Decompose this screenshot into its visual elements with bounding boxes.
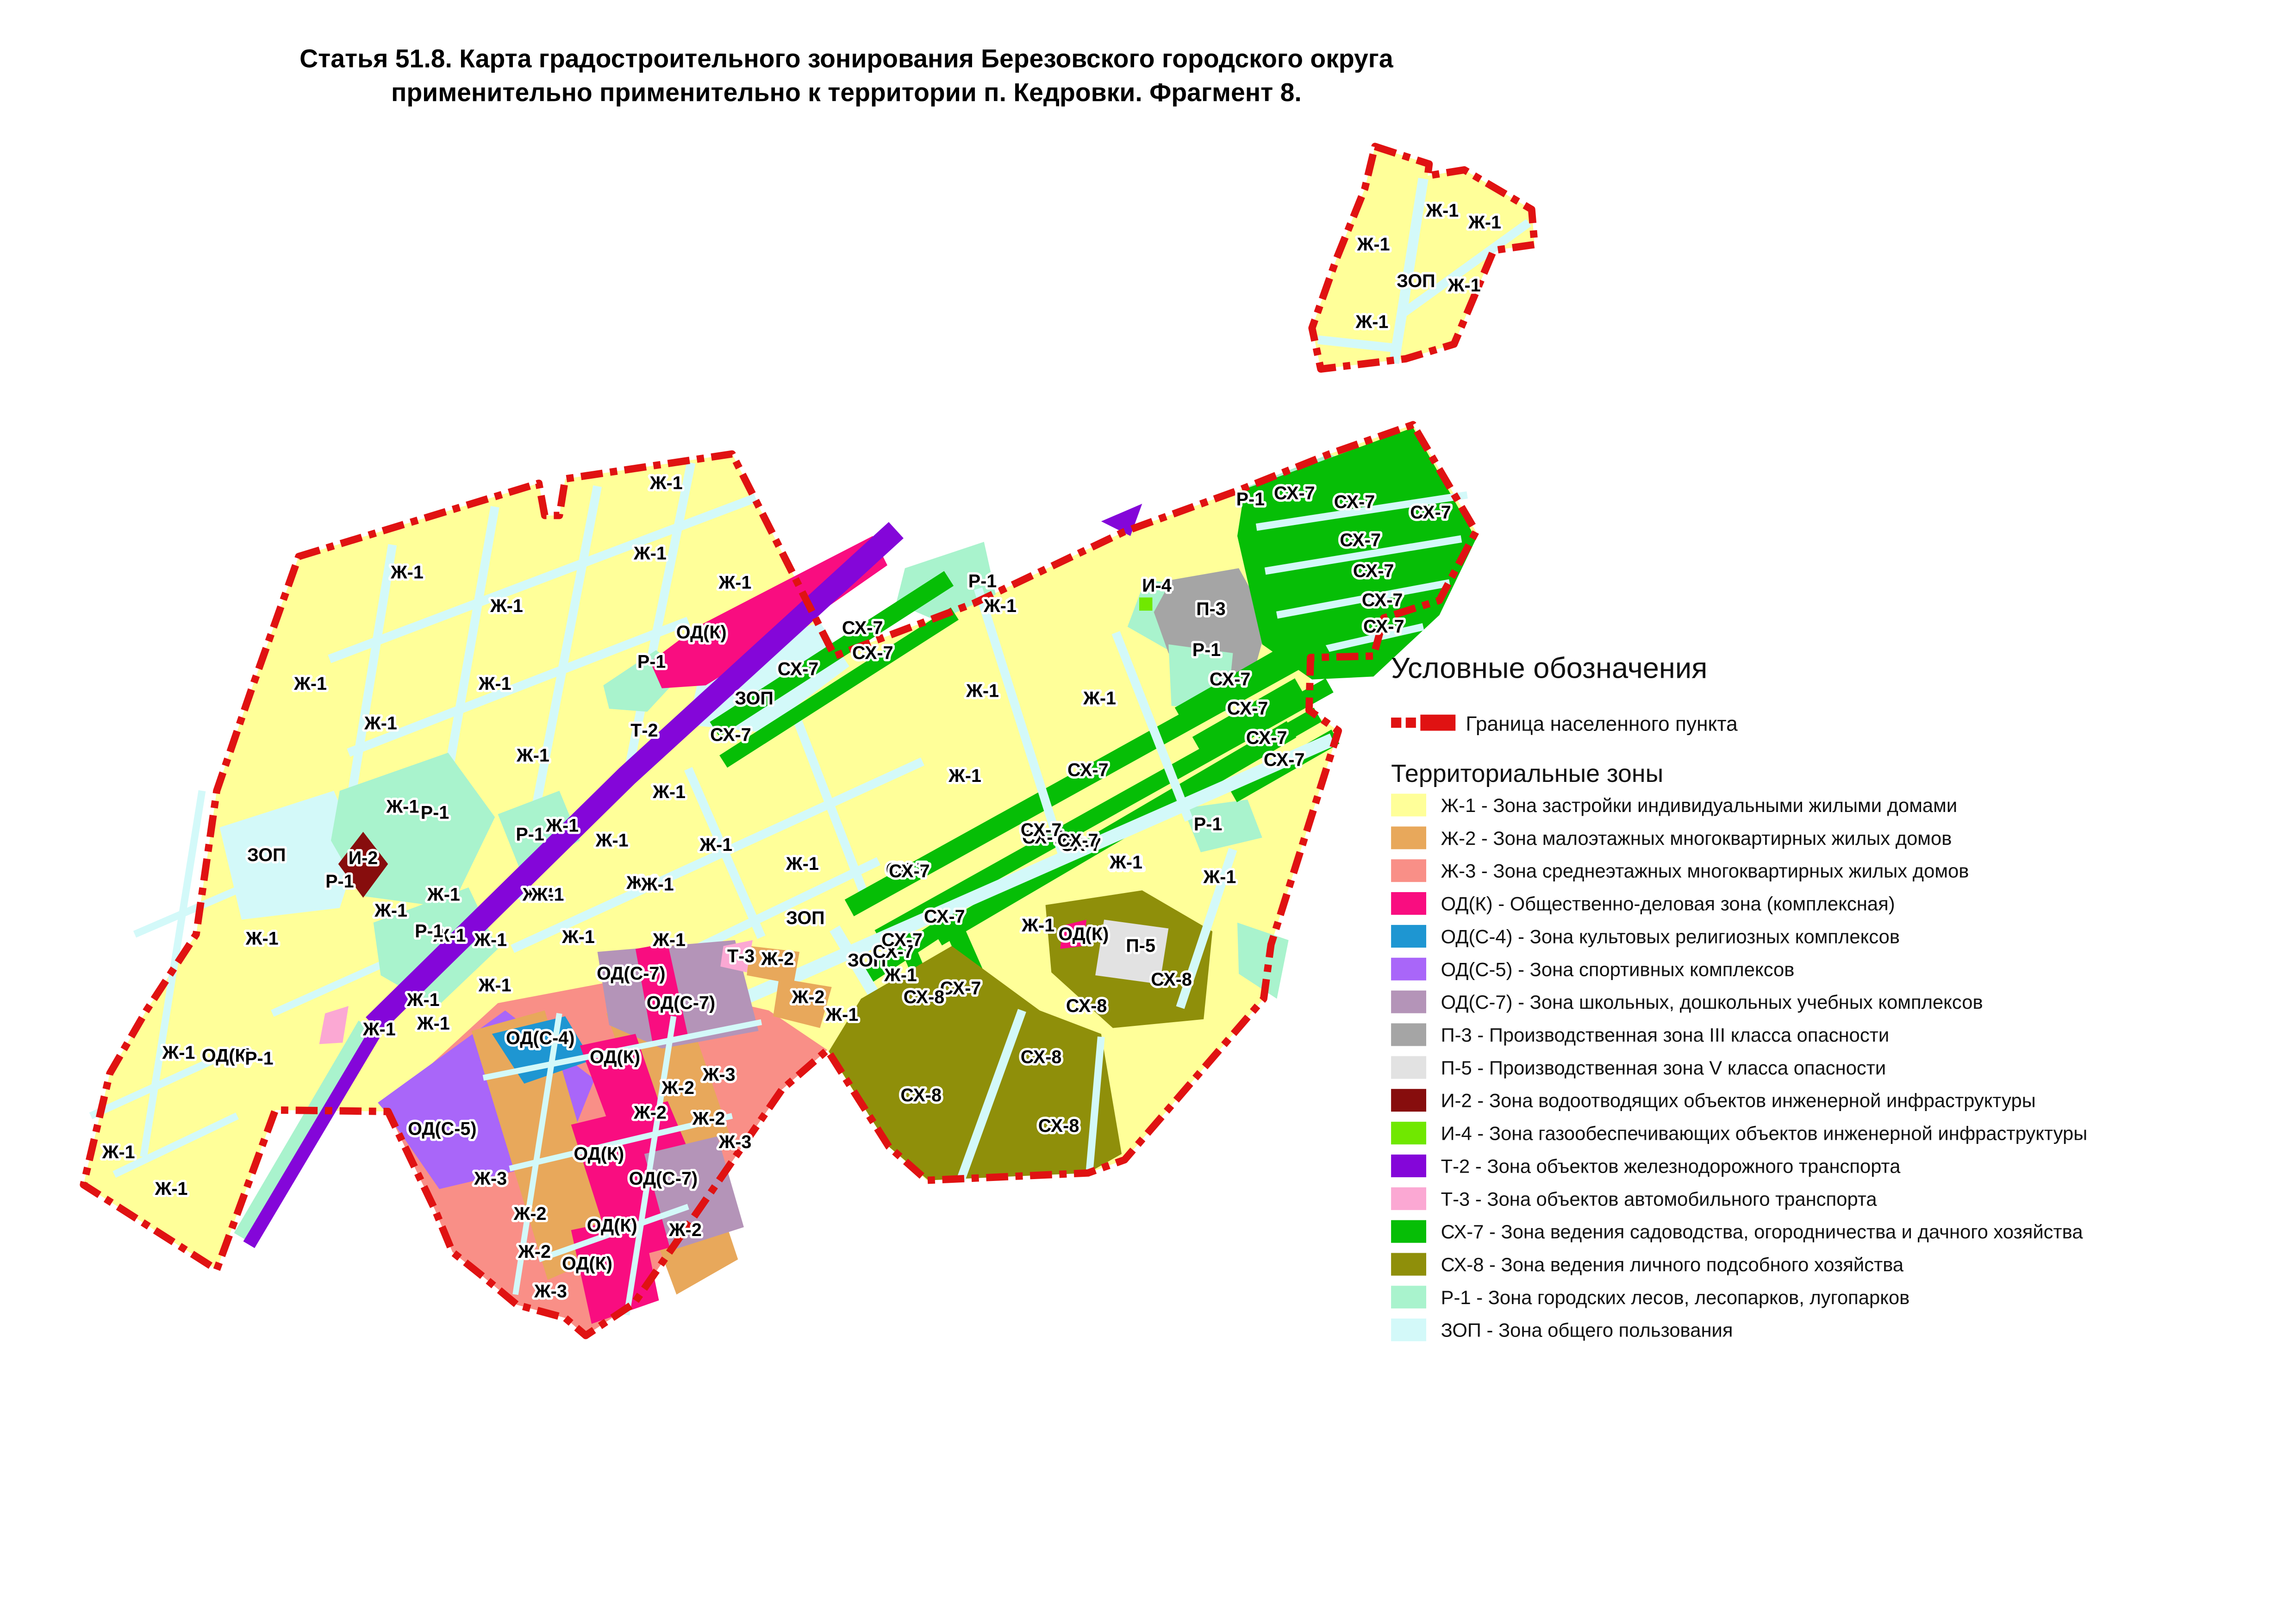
- legend-item: П-5 - Производственная зона V класса опа…: [1391, 1056, 1886, 1079]
- zone-label: Р-1: [516, 824, 544, 845]
- zone-label: ОД(К): [562, 1254, 612, 1274]
- zone-label: ЗОП: [247, 845, 286, 865]
- zone-label: Ж-2: [692, 1108, 725, 1129]
- legend-swatch: [1391, 826, 1426, 849]
- legend-item-label: Ж-2 - Зона малоэтажных многоквартирных ж…: [1441, 827, 1952, 849]
- legend-item-label: Т-3 - Зона объектов автомобильного транс…: [1441, 1188, 1878, 1210]
- legend-item: ОД(К) - Общественно-деловая зона (компле…: [1391, 892, 1895, 915]
- legend: Условные обозначения Граница населенного…: [1391, 652, 2087, 1342]
- zone-label: СХ-7: [1264, 750, 1305, 770]
- zone-label: СХ-7: [1353, 561, 1394, 581]
- legend-item-label: ОД(С-5) - Зона спортивных комплексов: [1441, 958, 1795, 980]
- legend-item: И-4 - Зона газообеспечивающих объектов и…: [1391, 1122, 2087, 1144]
- zone-label: ОД(С-5): [408, 1119, 476, 1139]
- legend-item: СХ-7 - Зона ведения садоводства, огородн…: [1391, 1220, 2083, 1243]
- legend-swatch: [1391, 1122, 1426, 1144]
- zone-label: Ж-1: [649, 473, 683, 493]
- legend-item-label: П-5 - Производственная зона V класса опа…: [1441, 1057, 1886, 1079]
- zone-label: СХ-7: [1067, 760, 1109, 781]
- zone-label: П-3: [1196, 599, 1226, 619]
- zone-label: Ж-1: [478, 674, 512, 694]
- zone-label: Ж-1: [983, 596, 1017, 616]
- zone-label: Р-1: [421, 802, 449, 823]
- zone-label: Ж-1: [427, 884, 460, 905]
- legend-item-label: И-4 - Зона газообеспечивающих объектов и…: [1441, 1123, 2088, 1144]
- zone-label: Ж-2: [761, 949, 794, 969]
- zone-label: ОД(С-7): [629, 1168, 698, 1189]
- legend-swatch: [1391, 793, 1426, 816]
- zone-label: СХ-8: [1038, 1116, 1079, 1136]
- legend-title: Условные обозначения: [1391, 652, 1707, 685]
- zone-label: СХ-8: [1151, 969, 1192, 990]
- zone-label: СХ-7: [940, 978, 981, 999]
- legend-swatch: [1391, 1220, 1426, 1243]
- zone-label: Ж-1: [718, 573, 752, 593]
- legend-item: Ж-3 - Зона среднеэтажных многоквартирных…: [1391, 859, 1969, 882]
- legend-item: Ж-2 - Зона малоэтажных многоквартирных ж…: [1391, 826, 1952, 849]
- zone-label: СХ-7: [1021, 820, 1062, 840]
- zone-label: СХ-7: [1363, 617, 1404, 637]
- zone-label: Ж-1: [1447, 275, 1481, 295]
- zone-label: Ж-1: [293, 674, 327, 694]
- legend-swatch: [1391, 1286, 1426, 1308]
- legend-boundary-label: Граница населенного пункта: [1466, 712, 1738, 735]
- zone-label: СХ-7: [710, 725, 751, 745]
- legend-item: ОД(С-5) - Зона спортивных комплексов: [1391, 958, 1794, 981]
- zone-label: Ж-1: [633, 543, 667, 563]
- zone-label: СХ-7: [881, 930, 923, 950]
- legend-item: ОД(С-7) - Зона школьных, дошкольных учеб…: [1391, 991, 1983, 1013]
- zone-label: Ж-2: [513, 1204, 547, 1224]
- zone-label: СХ-7: [852, 643, 893, 663]
- zone-label: Т-2: [630, 720, 658, 741]
- zone-label: Ж-1: [364, 713, 397, 733]
- legend-item-label: П-3 - Производственная зона III класса о…: [1441, 1024, 1890, 1046]
- zone-label: Ж-1: [1425, 200, 1459, 221]
- legend-item: Р-1 - Зона городских лесов, лесопарков, …: [1391, 1286, 1909, 1308]
- legend-item-label: Ж-1 - Зона застройки индивидуальными жил…: [1441, 794, 1958, 816]
- legend-item-label: ЗОП - Зона общего пользования: [1441, 1319, 1733, 1341]
- legend-item: ЗОП - Зона общего пользования: [1391, 1318, 1733, 1341]
- legend-item-label: Т-2 - Зона объектов железнодорожного тра…: [1441, 1155, 1901, 1177]
- legend-swatch: [1391, 859, 1426, 882]
- zone-label: Ж-1: [155, 1179, 188, 1199]
- zone-label: Ж-1: [374, 900, 407, 921]
- zone-label: Ж-1: [478, 975, 512, 996]
- zone-label: Р-1: [968, 571, 997, 591]
- zone-label: Ж-1: [652, 782, 686, 802]
- zone-label: ОД(С-7): [647, 993, 715, 1013]
- legend-item: ОД(С-4) - Зона культовых религиозных ком…: [1391, 925, 1900, 948]
- legend-boundary-row: Граница населенного пункта: [1391, 712, 1738, 735]
- sx7-north-lobe: [1237, 428, 1476, 680]
- zone-label: СХ-7: [1246, 728, 1287, 748]
- map-title-block: Статья 51.8. Карта градостроительного зо…: [299, 44, 1394, 107]
- legend-item-label: ОД(С-7) - Зона школьных, дошкольных учеб…: [1441, 991, 1983, 1013]
- zone-label: Ж-2: [668, 1220, 702, 1240]
- zone-label: Ж-2: [792, 987, 825, 1007]
- zone-label: Р-1: [1192, 640, 1221, 660]
- zone-label: СХ-7: [924, 906, 965, 927]
- zone-label: СХ-7: [1410, 502, 1451, 523]
- zone-label: Ж-1: [390, 562, 424, 582]
- zone-label: ЗОП: [735, 688, 773, 709]
- zone-label: СХ-8: [1021, 1047, 1062, 1068]
- zone-label: СХ-7: [842, 618, 883, 638]
- zone-label: Ж-1: [406, 990, 440, 1010]
- zone-label: Ж-1: [562, 927, 595, 947]
- zone-label: Р-1: [1194, 814, 1223, 835]
- zone-label: Ж-2: [633, 1103, 667, 1123]
- zone-label: СХ-7: [1334, 492, 1375, 512]
- zone-polygon-i4: [1139, 598, 1152, 611]
- zone-label: ОД(К): [574, 1143, 624, 1164]
- zone-label: Ж-1: [652, 930, 686, 950]
- zoning-map: ЗОПЖ-1Ж-1Ж-1Ж-1Ж-1Ж-1Ж-1Ж-1Ж-1Ж-1Ж-1Ж-1Ж…: [83, 146, 1535, 1336]
- zone-label: И-2: [349, 848, 378, 868]
- zone-label: Ж-3: [474, 1168, 507, 1189]
- zone-label: Ж-1: [162, 1043, 195, 1063]
- zone-label: ОД(К): [587, 1215, 637, 1236]
- legend-swatch: [1391, 1187, 1426, 1210]
- legend-item-label: Ж-3 - Зона среднеэтажных многоквартирных…: [1441, 860, 1969, 882]
- legend-swatch: [1391, 958, 1426, 981]
- zone-label: Ж-1: [386, 797, 419, 817]
- zone-label: Ж-1: [884, 965, 917, 985]
- zone-label: Р-1: [637, 651, 666, 672]
- zone-label: СХ-7: [778, 659, 819, 679]
- zone-label: Ж-1: [545, 816, 579, 836]
- legend-item-label: СХ-8 - Зона ведения личного подсобного х…: [1441, 1254, 1904, 1275]
- zone-label: Р-1: [325, 871, 354, 892]
- zone-label: Р-1: [1236, 489, 1265, 509]
- zone-label: СХ-7: [1340, 530, 1381, 550]
- legend-zones-title: Территориальные зоны: [1391, 760, 1663, 787]
- zone-label: Ж-1: [1021, 915, 1054, 936]
- legend-swatch: [1391, 892, 1426, 915]
- zone-label: Ж-1: [102, 1142, 135, 1162]
- title-line-1: Статья 51.8. Карта градостроительного зо…: [299, 44, 1394, 73]
- zone-label: Ж-1: [1355, 312, 1389, 332]
- zone-label: Ж-1: [516, 745, 549, 766]
- zone-label: СХ-8: [900, 1085, 942, 1106]
- legend-item: П-3 - Производственная зона III класса о…: [1391, 1023, 1889, 1046]
- zone-label: ЗОП: [786, 908, 824, 928]
- zone-label: Ж-1: [948, 766, 981, 786]
- zone-label: Ж-1: [531, 884, 564, 905]
- zone-label: СХ-8: [1066, 996, 1107, 1016]
- legend-swatch: [1391, 1056, 1426, 1079]
- title-line-2: применительно применительно к территории…: [391, 78, 1302, 106]
- zoning-map-page: Статья 51.8. Карта градостроительного зо…: [0, 0, 2296, 1624]
- zone-label: ОД(К): [590, 1047, 640, 1068]
- legend-item-label: ОД(С-4) - Зона культовых религиозных ком…: [1441, 925, 1900, 947]
- zone-label: Ж-1: [1203, 867, 1236, 887]
- zone-label: Ж-1: [825, 1005, 858, 1025]
- zone-label: СХ-7: [1057, 830, 1098, 850]
- legend-swatch: [1391, 1155, 1426, 1177]
- boundary-dash-icon: [1420, 715, 1455, 731]
- zone-label: Ж-1: [595, 830, 629, 850]
- zone-label: Ж-2: [661, 1078, 694, 1098]
- legend-items: Ж-1 - Зона застройки индивидуальными жил…: [1391, 793, 2087, 1341]
- legend-item-label: Р-1 - Зона городских лесов, лесопарков, …: [1441, 1287, 1910, 1308]
- zone-label: Ж-1: [1109, 852, 1142, 873]
- zone-label: СХ-7: [889, 861, 930, 881]
- legend-swatch: [1391, 925, 1426, 948]
- legend-swatch: [1391, 1253, 1426, 1275]
- zone-label: Ж-1: [474, 930, 507, 950]
- boundary-dash-icon: [1406, 718, 1416, 728]
- zone-label: ОД(С-4): [506, 1028, 574, 1048]
- legend-item: Т-3 - Зона объектов автомобильного транс…: [1391, 1187, 1877, 1210]
- legend-swatch: [1391, 1318, 1426, 1341]
- zone-label: Ж-1: [362, 1019, 396, 1039]
- zone-label: СХ-7: [1362, 590, 1403, 611]
- zone-label: ОД(С-7): [597, 963, 665, 984]
- zone-label: Ж-1: [786, 854, 819, 874]
- legend-item-label: СХ-7 - Зона ведения садоводства, огородн…: [1441, 1221, 2084, 1243]
- legend-item-label: ОД(К) - Общественно-деловая зона (компле…: [1441, 893, 1895, 915]
- boundary-dash-icon: [1391, 718, 1401, 728]
- zone-label: Ж-1: [490, 596, 523, 616]
- zone-label: Ж-1: [641, 874, 674, 894]
- zone-label: Ж-1: [417, 1013, 450, 1034]
- legend-item-label: И-2 - Зона водоотводящих объектов инжене…: [1441, 1090, 2036, 1112]
- zone-label: СХ-8: [904, 987, 945, 1007]
- zone-label: Р-1: [245, 1049, 274, 1069]
- legend-item: Ж-1 - Зона застройки индивидуальными жил…: [1391, 793, 1957, 816]
- zone-label: Ж-1: [1083, 688, 1116, 709]
- zone-label: СХ-7: [1274, 483, 1315, 504]
- zone-label: ЗОП: [1397, 271, 1435, 291]
- zone-label: Ж-3: [718, 1132, 752, 1152]
- zone-label: Ж-1: [1357, 234, 1390, 255]
- zone-label: ОД(К): [676, 622, 727, 643]
- legend-swatch: [1391, 1089, 1426, 1112]
- zone-label: П-5: [1126, 936, 1155, 956]
- zone-label: СХ-7: [1210, 669, 1251, 689]
- zone-label: Ж-3: [702, 1064, 736, 1085]
- legend-swatch: [1391, 991, 1426, 1013]
- zone-label: Т-3: [727, 946, 755, 966]
- zone-label: Р-1: [415, 921, 443, 941]
- legend-swatch: [1391, 1023, 1426, 1046]
- legend-item: И-2 - Зона водоотводящих объектов инжене…: [1391, 1089, 2036, 1112]
- zone-label: СХ-7: [1227, 699, 1268, 719]
- zone-label: ОД(К): [1058, 924, 1109, 944]
- zone-label: Ж-1: [245, 928, 279, 949]
- zone-label: Ж-3: [534, 1281, 567, 1302]
- zone-label: Ж-1: [699, 835, 732, 855]
- legend-item: СХ-8 - Зона ведения личного подсобного х…: [1391, 1253, 1904, 1275]
- zone-label: Ж-1: [1468, 212, 1501, 232]
- zone-label: Ж-1: [966, 681, 999, 701]
- zone-label: Ж-2: [518, 1242, 551, 1262]
- zone-label: И-4: [1142, 575, 1172, 596]
- legend-item: Т-2 - Зона объектов железнодорожного тра…: [1391, 1155, 1901, 1177]
